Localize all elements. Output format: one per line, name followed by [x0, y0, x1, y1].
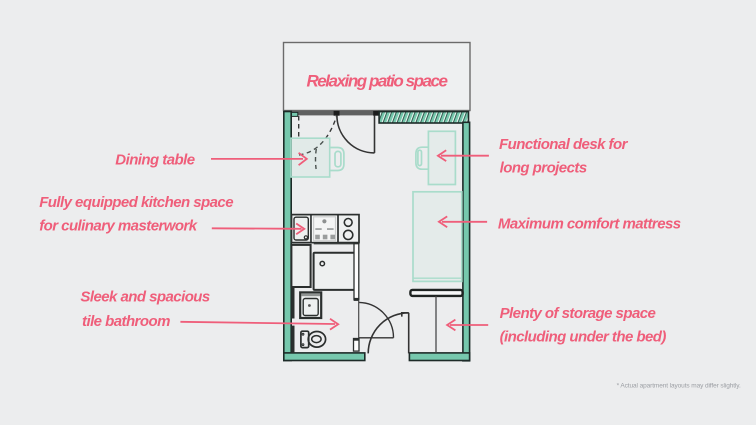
svg-text:tile bathroom: tile bathroom	[82, 313, 170, 330]
svg-text:Dining table: Dining table	[115, 152, 194, 169]
svg-text:(including under the bed): (including under the bed)	[500, 329, 667, 346]
svg-text:Sleek and spacious: Sleek and spacious	[80, 289, 210, 306]
svg-text:Functional desk for: Functional desk for	[499, 136, 629, 153]
svg-text:for culinary masterwork: for culinary masterwork	[39, 218, 198, 235]
svg-text:Fully equipped kitchen space: Fully equipped kitchen space	[39, 194, 233, 211]
svg-text:* Actual apartment layouts may: * Actual apartment layouts may differ sl…	[617, 383, 741, 390]
svg-text:Relaxing patio space: Relaxing patio space	[306, 72, 447, 91]
svg-text:long projects: long projects	[500, 160, 587, 177]
svg-text:Plenty of storage space: Plenty of storage space	[500, 305, 656, 322]
svg-text:Maximum comfort mattress: Maximum comfort mattress	[498, 216, 681, 233]
